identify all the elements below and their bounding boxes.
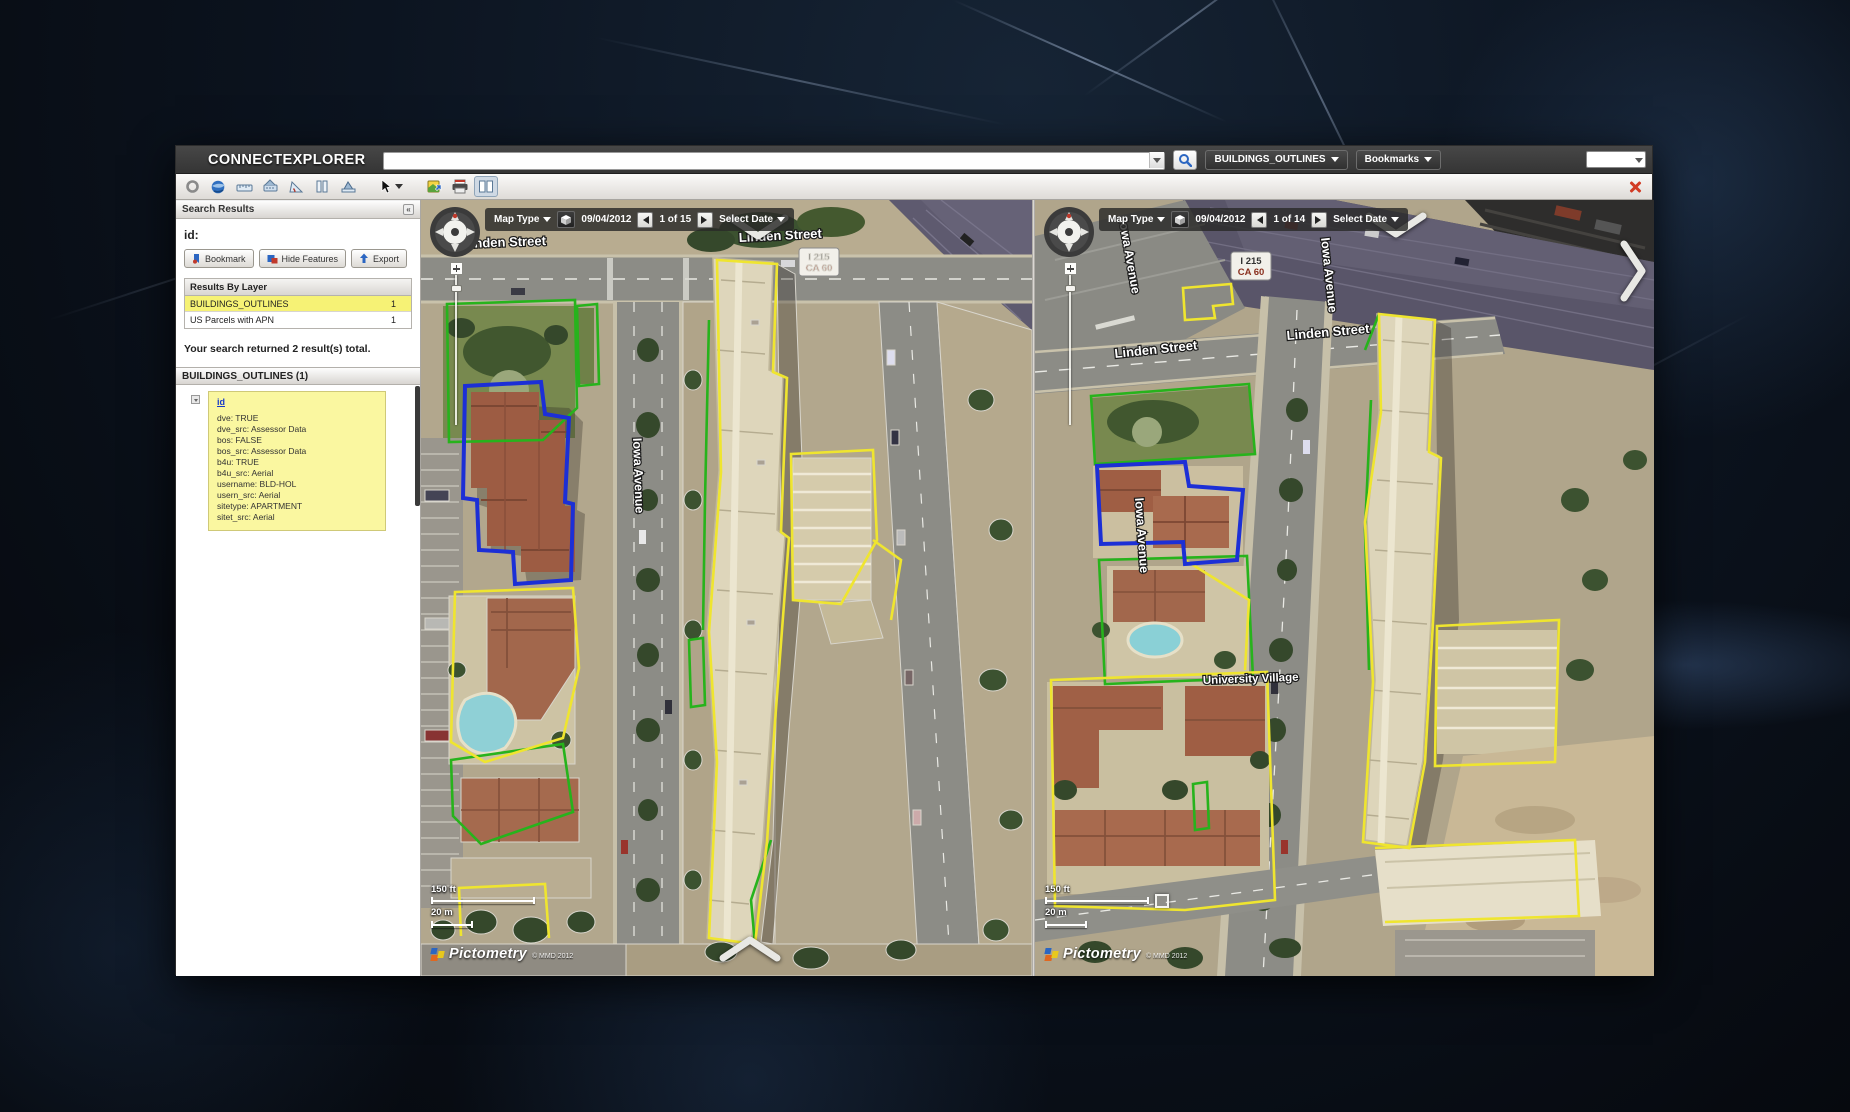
chevron-down-icon — [1391, 217, 1399, 226]
close-icon[interactable] — [1628, 180, 1642, 194]
globe-icon[interactable] — [206, 176, 230, 197]
bookmark-label: Bookmark — [205, 254, 246, 264]
bookmark-button[interactable]: Bookmark — [184, 249, 254, 268]
image-position: 1 of 14 — [1273, 214, 1305, 225]
feature-attribute: dve_src: Assessor Data — [217, 424, 379, 435]
next-icon — [1315, 216, 1325, 224]
select-date-dropdown[interactable]: Select Date — [719, 213, 785, 226]
chevron-down-icon — [1331, 157, 1339, 166]
aerial-imagery-left[interactable]: Linden Street Linden Street Iowa Avenue … — [421, 200, 1032, 976]
search-history-dropdown-button[interactable] — [1149, 152, 1164, 168]
capture-date: 09/04/2012 — [581, 214, 631, 225]
scale-m-label: 20 m — [431, 907, 535, 918]
scale-ft-label: 150 ft — [431, 884, 535, 895]
split-view-icon[interactable] — [474, 176, 498, 197]
zoom-slider[interactable] — [449, 262, 463, 292]
light-streak — [953, 0, 1228, 123]
id-label: id: — [184, 228, 412, 242]
svg-text:I 215: I 215 — [1240, 256, 1262, 267]
search-results-panel: Search Results « id: Bookmark Hide Featu… — [176, 200, 421, 976]
feature-attribute: sitetype: APARTMENT — [217, 501, 379, 512]
chevron-down-icon — [1153, 158, 1161, 167]
pictometry-copyright: © MMD 2012 — [1146, 953, 1187, 960]
svg-text:CA 60: CA 60 — [1238, 267, 1265, 278]
layer-count: 1 — [391, 299, 406, 309]
print-icon[interactable] — [448, 176, 472, 197]
zoom-handle[interactable] — [451, 285, 462, 292]
topbar-dropdown[interactable] — [1586, 151, 1646, 168]
connectexplorer-window: CONNECTEXPLORER BUILDINGS_OUTLINES Bookm… — [175, 145, 1653, 975]
scale-ft-label: 150 ft — [1045, 884, 1149, 895]
street-label: Iowa Avenue — [630, 438, 647, 514]
compare-columns-icon[interactable] — [310, 176, 334, 197]
image-position: 1 of 15 — [659, 214, 691, 225]
scale-m-bar — [1045, 921, 1087, 928]
scale-bar: 150 ft 20 m — [431, 884, 535, 928]
chevron-down-icon — [1635, 158, 1643, 167]
pictometry-logo: Pictometry © MMD 2012 — [1045, 946, 1187, 962]
refresh-icon[interactable] — [180, 176, 204, 197]
feature-attribute: bos: FALSE — [217, 435, 379, 446]
map-type-dropdown[interactable]: Map Type — [494, 213, 551, 226]
main-toolbar — [176, 174, 1652, 200]
map-type-dropdown[interactable]: Map Type — [1108, 213, 1165, 226]
cube-icon — [560, 214, 572, 226]
chevron-down-icon — [777, 217, 785, 226]
export-arrow-icon — [359, 253, 369, 264]
measure-height-icon[interactable] — [258, 176, 282, 197]
zoom-track[interactable] — [455, 275, 457, 425]
top-bar: CONNECTEXPLORER BUILDINGS_OUTLINES Bookm… — [176, 146, 1652, 174]
feature-attribute: dve: TRUE — [217, 413, 379, 424]
export-image-icon[interactable] — [422, 176, 446, 197]
feature-attribute: bos_src: Assessor Data — [217, 446, 379, 457]
highway-shield: I 215 CA 60 — [799, 248, 839, 276]
select-date-label: Select Date — [1333, 214, 1387, 225]
layer-dropdown-button[interactable]: BUILDINGS_OUTLINES — [1205, 150, 1347, 170]
prev-image-button[interactable] — [637, 212, 653, 228]
chevron-down-icon — [395, 184, 403, 193]
pictometry-name: Pictometry — [449, 946, 527, 962]
feature-attribute: b4u: TRUE — [217, 457, 379, 468]
select-date-dropdown[interactable]: Select Date — [1333, 213, 1399, 226]
zoom-slider[interactable] — [1063, 262, 1077, 292]
export-label: Export — [373, 254, 399, 264]
pictometry-logo: Pictometry © MMD 2012 — [431, 946, 573, 962]
aerial-imagery-right[interactable]: Iowa Avenue Linden Street Linden Street … — [1035, 200, 1654, 976]
light-streak — [1084, 0, 1296, 96]
search-results-title: Search Results — [182, 204, 254, 215]
oblique-view-button[interactable] — [557, 211, 575, 228]
feature-expander-icon[interactable] — [191, 395, 200, 404]
select-date-label: Select Date — [719, 214, 773, 225]
table-row[interactable]: BUILDINGS_OUTLINES 1 — [185, 296, 411, 312]
hide-features-button[interactable]: Hide Features — [259, 249, 347, 268]
feature-result-area: id dve: TRUE dve_src: Assessor Data bos:… — [176, 385, 420, 531]
prev-icon — [1253, 216, 1263, 224]
zoom-in-icon[interactable] — [1064, 262, 1077, 275]
bookmarks-label: Bookmarks — [1365, 154, 1419, 165]
layer-name: BUILDINGS_OUTLINES — [190, 299, 289, 309]
chevron-down-icon — [1157, 217, 1165, 226]
feature-attribute: b4u_src: Aerial — [217, 468, 379, 479]
table-row[interactable]: US Parcels with APN 1 — [185, 312, 411, 328]
sidebar-scrollbar[interactable] — [415, 386, 420, 506]
search-field-wrap — [383, 151, 1165, 169]
pane-toolbar-left: Map Type 09/04/2012 1 of 15 Select Date — [485, 208, 794, 231]
hide-features-label: Hide Features — [282, 254, 339, 264]
map-pane-left[interactable]: Linden Street Linden Street Iowa Avenue … — [421, 200, 1032, 976]
cube-icon — [1174, 214, 1186, 226]
scale-m-label: 20 m — [1045, 907, 1149, 918]
map-type-label: Map Type — [1108, 214, 1153, 225]
pane-toolbar-right: Map Type 09/04/2012 1 of 14 Select Date — [1099, 208, 1408, 231]
north-marker — [453, 214, 457, 218]
compass-control[interactable] — [429, 206, 481, 258]
north-marker — [1067, 214, 1071, 218]
chevron-down-icon — [543, 217, 551, 226]
feature-attribute: sitet_src: Aerial — [217, 512, 379, 523]
search-icon — [1178, 153, 1192, 167]
pictometry-name: Pictometry — [1063, 946, 1141, 962]
export-button[interactable]: Export — [351, 249, 407, 268]
hide-features-icon — [267, 253, 278, 264]
results-by-layer-header: Results By Layer — [185, 279, 411, 296]
app-logo: CONNECTEXPLORER — [182, 152, 375, 168]
pictometry-copyright: © MMD 2012 — [532, 953, 573, 960]
pan-right-chevron[interactable] — [1620, 240, 1646, 302]
scale-ft-bar — [431, 897, 535, 904]
map-pane-right[interactable]: Iowa Avenue Linden Street Linden Street … — [1035, 200, 1654, 976]
next-image-button[interactable] — [697, 212, 713, 228]
zoom-track[interactable] — [1069, 275, 1071, 425]
search-summary: Your search returned 2 result(s) total. — [184, 343, 412, 355]
map-marker-square[interactable] — [1155, 894, 1169, 908]
collapse-panel-icon[interactable]: « — [403, 204, 414, 215]
bookmark-pin-icon — [192, 253, 201, 264]
highway-shield: I 215 CA 60 — [1231, 252, 1271, 280]
feature-id-link[interactable]: id — [217, 397, 225, 407]
oblique-view-button[interactable] — [1171, 211, 1189, 228]
pictometry-mark-icon — [431, 948, 444, 961]
layer-dropdown-label: BUILDINGS_OUTLINES — [1214, 154, 1325, 165]
map-area: Linden Street Linden Street Iowa Avenue … — [421, 200, 1654, 976]
compass-control[interactable] — [1043, 206, 1095, 258]
prev-icon — [639, 216, 649, 224]
select-tool-icon[interactable] — [374, 176, 408, 197]
scale-m-bar — [431, 921, 473, 928]
pictometry-mark-icon — [1045, 948, 1058, 961]
zoom-handle[interactable] — [1065, 285, 1076, 292]
chevron-down-icon — [1424, 157, 1432, 166]
feature-attribute: username: BLD-HOL — [217, 479, 379, 490]
prev-image-button[interactable] — [1251, 212, 1267, 228]
search-button[interactable] — [1173, 150, 1197, 170]
results-by-layer-table: Results By Layer BUILDINGS_OUTLINES 1 US… — [184, 278, 412, 329]
layer-section-header[interactable]: BUILDINGS_OUTLINES (1) — [176, 367, 420, 385]
measure-area-icon[interactable] — [336, 176, 360, 197]
measure-angle-icon[interactable] — [284, 176, 308, 197]
next-image-button[interactable] — [1311, 212, 1327, 228]
search-results-header: Search Results « — [176, 200, 420, 219]
measure-distance-icon[interactable] — [232, 176, 256, 197]
pan-down-chevron[interactable] — [719, 936, 781, 962]
zoom-in-icon[interactable] — [450, 262, 463, 275]
feature-attribute: usern_src: Aerial — [217, 490, 379, 501]
layer-count: 1 — [391, 315, 406, 325]
scale-bar: 150 ft 20 m — [1045, 884, 1149, 928]
svg-text:CA 60: CA 60 — [806, 263, 833, 274]
feature-card[interactable]: id dve: TRUE dve_src: Assessor Data bos:… — [208, 391, 386, 531]
light-streak — [594, 36, 1005, 125]
map-type-label: Map Type — [494, 214, 539, 225]
bookmarks-dropdown-button[interactable]: Bookmarks — [1356, 150, 1441, 170]
next-icon — [701, 216, 711, 224]
search-input[interactable] — [383, 152, 1165, 170]
scale-ft-bar — [1045, 897, 1149, 904]
layer-name: US Parcels with APN — [190, 315, 274, 325]
capture-date: 09/04/2012 — [1195, 214, 1245, 225]
svg-text:I 215: I 215 — [808, 252, 830, 263]
